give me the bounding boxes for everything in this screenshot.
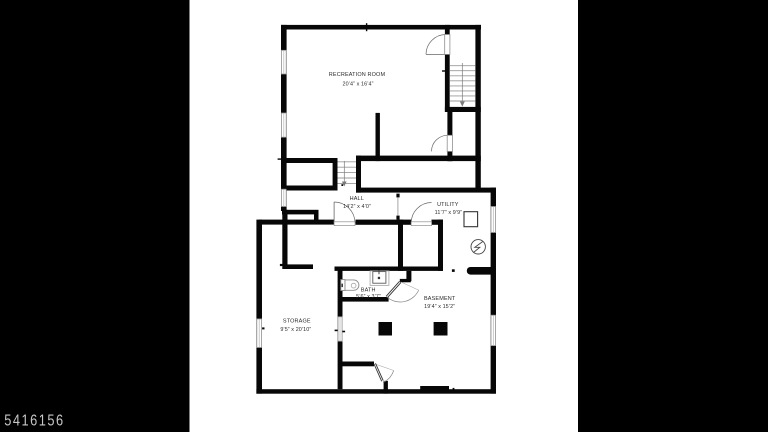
svg-text:RECREATION ROOM: RECREATION ROOM — [329, 72, 386, 78]
svg-text:BATH: BATH — [361, 288, 376, 294]
svg-text:BASEMENT: BASEMENT — [424, 296, 456, 302]
svg-text:14’2” x 4’0”: 14’2” x 4’0” — [343, 204, 371, 210]
svg-text:HALL: HALL — [350, 196, 364, 202]
svg-text:5416156: 5416156 — [4, 412, 64, 430]
svg-text:9’5” x 20’10”: 9’5” x 20’10” — [280, 327, 311, 333]
svg-text:11’7” x 9’9”: 11’7” x 9’9” — [435, 210, 463, 216]
svg-text:UTILITY: UTILITY — [437, 202, 459, 208]
svg-text:19’4” x 15’2”: 19’4” x 15’2” — [424, 304, 455, 310]
svg-text:20’4” x 16’4”: 20’4” x 16’4” — [343, 82, 374, 88]
svg-text:5’6” x 3’7”: 5’6” x 3’7” — [356, 294, 381, 300]
svg-text:STORAGE: STORAGE — [283, 318, 311, 324]
